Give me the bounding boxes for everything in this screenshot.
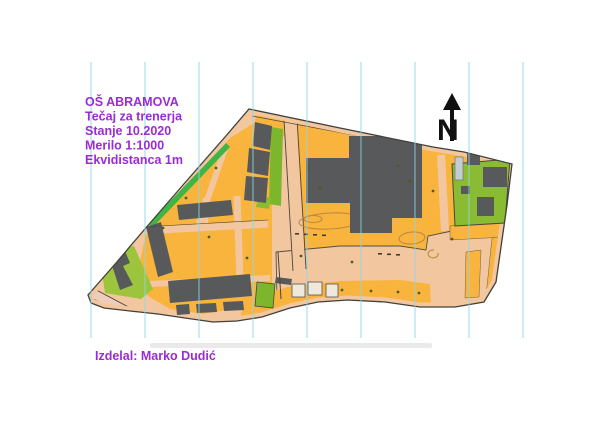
north-arrow-label: N bbox=[437, 114, 459, 147]
title-line-3: Stanje 10.2020 bbox=[85, 124, 171, 138]
map-sheet: N OŠ ABRAMOVA Tečaj za trenerja Stanje 1… bbox=[0, 0, 600, 424]
green-square-top bbox=[204, 118, 224, 136]
canopy-2 bbox=[308, 282, 322, 295]
scan-shadow bbox=[150, 343, 432, 348]
north-arrow: N bbox=[437, 93, 461, 147]
title-line-4: Merilo 1:1000 bbox=[85, 139, 164, 153]
building-column-a bbox=[253, 122, 272, 150]
building-right-3 bbox=[477, 197, 494, 216]
green-rect-road-end bbox=[255, 282, 275, 308]
canopy-1 bbox=[292, 284, 305, 297]
building-shed-1 bbox=[176, 304, 190, 315]
road-vertical-1 bbox=[237, 196, 240, 280]
building-shed-3 bbox=[223, 301, 244, 311]
north-arrow-head bbox=[443, 93, 461, 110]
title-line-2: Tečaj za trenerja bbox=[85, 110, 183, 124]
title-line-1: OŠ ABRAMOVA bbox=[85, 94, 179, 109]
canopy-3 bbox=[326, 284, 338, 297]
building-right-1 bbox=[483, 167, 507, 187]
map-title-block: OŠ ABRAMOVA Tečaj za trenerja Stanje 10.… bbox=[85, 94, 183, 167]
green-strip-vertical bbox=[269, 127, 283, 206]
canopy-light-gray bbox=[455, 157, 463, 180]
building-column-c bbox=[244, 176, 268, 203]
credit-text: Izdelal: Marko Dudić bbox=[95, 349, 216, 363]
title-line-5: Ekvidistanca 1m bbox=[85, 153, 183, 167]
orienteering-map: N OŠ ABRAMOVA Tečaj za trenerja Stanje 1… bbox=[0, 0, 600, 424]
road-right-vertical bbox=[441, 155, 445, 231]
orange-strip-inner bbox=[465, 250, 481, 298]
building-column-b bbox=[247, 148, 270, 176]
